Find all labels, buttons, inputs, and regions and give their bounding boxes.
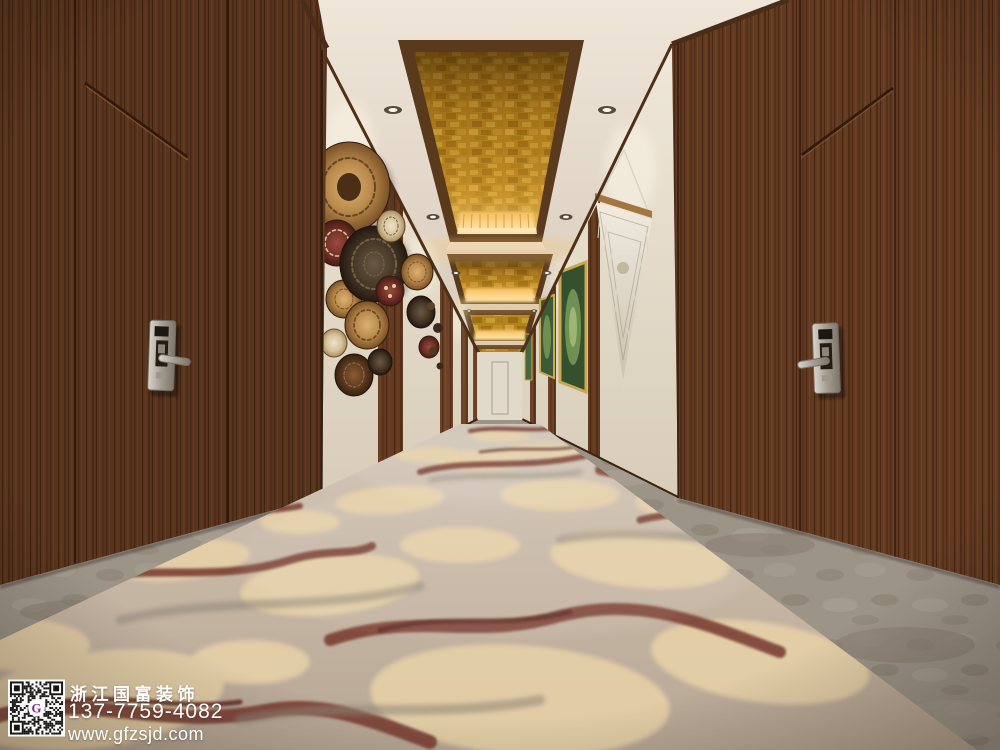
corridor-scene — [0, 0, 1000, 750]
vignette — [0, 0, 1000, 750]
hotel-corridor-rendering: G 浙江国富装饰 137-7759-4082 www.gfzsjd.com — [0, 0, 1000, 750]
